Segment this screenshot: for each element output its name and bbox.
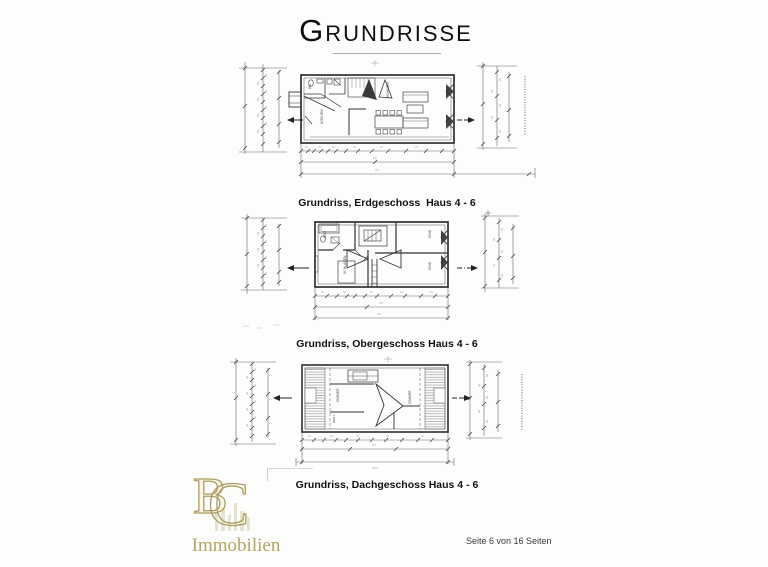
page-number: Seite 6 von 16 Seiten bbox=[466, 536, 552, 546]
window-symbols bbox=[446, 84, 454, 129]
page-title-initial: G bbox=[299, 13, 325, 48]
floorplan-erdgeschoss-drawing: WC KOCHEN WOHNEN bbox=[235, 54, 555, 189]
room-label: SCHLAFEN bbox=[343, 255, 347, 274]
company-logo: B C Immobilien bbox=[191, 467, 311, 563]
scan-artifact-line bbox=[267, 468, 313, 469]
section-arrow-right bbox=[457, 117, 475, 123]
room-label: KIND bbox=[428, 229, 432, 238]
house-outline bbox=[301, 75, 454, 143]
dimension-chain-bottom bbox=[243, 287, 450, 328]
room-label: WOHNEN bbox=[386, 82, 390, 98]
dimension-chain-right bbox=[481, 210, 519, 292]
bathroom-fixtures bbox=[319, 224, 339, 243]
document-page: GRUNDRISSE bbox=[0, 0, 768, 567]
sofa-group bbox=[403, 92, 428, 128]
roof-slope-hatching bbox=[305, 368, 445, 429]
page-title: GRUNDRISSE bbox=[234, 14, 538, 51]
dimension-chain-left bbox=[230, 358, 276, 446]
page-title-rest: RUNDRISSE bbox=[325, 21, 473, 46]
dimension-chain-left bbox=[239, 62, 287, 154]
floorplan-obergeschoss-drawing: BAD SCHLAFEN KIND KIND bbox=[235, 208, 555, 348]
section-arrow-left bbox=[287, 265, 309, 271]
survey-mark bbox=[384, 356, 392, 362]
dimension-chain-right bbox=[466, 360, 522, 440]
survey-mark bbox=[371, 60, 379, 66]
room-label: ZIMMER bbox=[408, 390, 412, 404]
bathroom-fixtures bbox=[309, 79, 340, 86]
floorplan-dachgeschoss-drawing: ZIMMER ABST. ZIMMER bbox=[226, 350, 556, 485]
scan-artifact-line bbox=[267, 468, 268, 481]
room-label: BAD bbox=[323, 230, 327, 238]
monogram-letter-c: C bbox=[208, 471, 249, 537]
logo-monogram: B C bbox=[191, 467, 275, 537]
caption-obergeschoss: Grundriss, Obergeschoss Haus 4 - 6 bbox=[237, 338, 537, 350]
room-label: ZIMMER bbox=[336, 388, 340, 402]
dimension-chain-right bbox=[477, 62, 525, 150]
knee-wall-dashed-lines bbox=[330, 368, 420, 429]
window-symbols bbox=[441, 230, 448, 270]
entrance-porch bbox=[289, 92, 301, 107]
dimension-chain-left bbox=[241, 214, 287, 294]
dimension-chain-bottom bbox=[296, 432, 454, 468]
room-label: KIND bbox=[428, 261, 432, 270]
stair-direction-arrow bbox=[376, 384, 403, 426]
section-arrow-left bbox=[273, 395, 292, 401]
room-label: KOCHEN bbox=[320, 109, 324, 124]
logo-wordmark: Immobilien bbox=[188, 536, 284, 556]
section-arrow-right bbox=[457, 265, 478, 271]
dining-table-and-chairs bbox=[375, 111, 403, 135]
room-label: ABST. bbox=[332, 414, 336, 423]
interior-walls bbox=[330, 370, 420, 429]
room-label: WC bbox=[308, 83, 312, 89]
